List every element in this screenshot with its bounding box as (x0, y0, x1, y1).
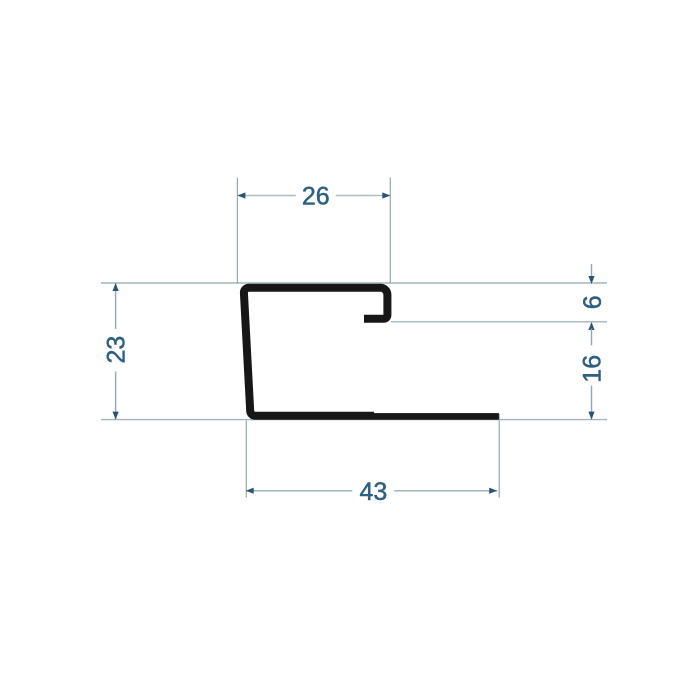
svg-text:23: 23 (103, 336, 131, 364)
svg-text:16: 16 (578, 355, 606, 383)
svg-text:26: 26 (302, 183, 330, 211)
svg-text:6: 6 (579, 295, 607, 309)
svg-text:43: 43 (359, 478, 387, 506)
